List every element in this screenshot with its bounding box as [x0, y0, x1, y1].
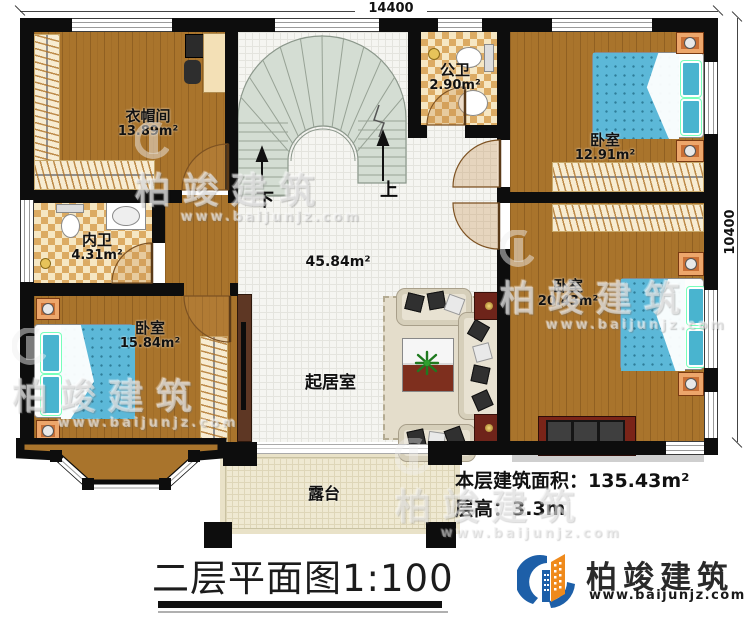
- room-name: 衣帽间: [100, 108, 196, 125]
- room-label-public-bath: 公卫 2.90m²: [415, 62, 495, 94]
- sink-basin: [112, 206, 140, 226]
- window: [666, 441, 704, 455]
- bedroom-bottom-left-closet: [200, 336, 228, 452]
- nightstand: [678, 252, 704, 276]
- toilet-tank: [56, 204, 84, 213]
- wall-segment: [497, 18, 510, 140]
- watermark-url: www.baijunjz.com: [441, 526, 622, 541]
- nightstand: [36, 298, 60, 320]
- window: [438, 18, 482, 32]
- wall-segment: [152, 203, 165, 243]
- bay-window: [16, 438, 231, 502]
- room-name: 卧室: [518, 278, 618, 295]
- wall-segment: [230, 283, 238, 296]
- room-name: 卧室: [555, 132, 655, 149]
- room-area: 45.84m²: [298, 254, 378, 270]
- room-label-terrace: 露台: [308, 480, 340, 504]
- window: [704, 290, 718, 368]
- wall-segment: [20, 283, 184, 296]
- wall-segment: [408, 125, 427, 138]
- wall-segment: [225, 18, 238, 190]
- room-name: 公卫: [415, 62, 495, 79]
- bedroom-right-closet: [552, 204, 704, 232]
- stairs-down-label: 下: [256, 186, 274, 212]
- room-area: 13.89m²: [100, 125, 196, 140]
- floor-area-info: 本层建筑面积：135.43m²: [455, 466, 689, 493]
- wall-segment: [497, 249, 510, 442]
- tv-screen: [241, 322, 246, 410]
- floor-drain: [40, 258, 51, 269]
- room-area: 15.84m²: [102, 337, 198, 352]
- sofa-pillow: [470, 364, 490, 384]
- window: [704, 62, 718, 134]
- sheet-title-scale: 1:100: [342, 557, 454, 600]
- brand-website: www.baijunjz.com: [589, 588, 746, 603]
- nightstand: [676, 32, 704, 54]
- window: [20, 200, 34, 282]
- bedroom-top-right-closet: [552, 162, 704, 192]
- bed: [620, 278, 704, 370]
- floor-height-info: 层高：3.3m: [455, 494, 565, 521]
- terrace-door-threshold: [257, 444, 428, 454]
- wall-segment: [497, 187, 510, 203]
- room-label-living: 起居室: [305, 368, 356, 393]
- floor-area-value: 135.43m²: [588, 470, 689, 492]
- room-area: 2.90m²: [415, 79, 495, 94]
- terrace-pillar: [204, 522, 232, 548]
- cloakroom-wardrobe-bottom: [34, 160, 155, 190]
- window: [275, 18, 379, 32]
- corridor-floor: [165, 195, 238, 296]
- desk-chair: [184, 60, 201, 84]
- room-label-bedroom-bottom-left: 卧室 15.84m²: [102, 320, 198, 352]
- window: [552, 18, 652, 32]
- room-area: 4.31m²: [55, 249, 139, 264]
- window: [704, 392, 718, 438]
- wall-segment: [465, 125, 497, 138]
- wall-pier: [428, 441, 462, 465]
- sheet-title: 二层平面图1:100: [152, 548, 454, 602]
- plant: [414, 350, 440, 376]
- terrace-pillar: [426, 522, 456, 548]
- room-name: 内卫: [55, 232, 139, 249]
- floor-drain: [428, 48, 440, 60]
- room-label-cloakroom: 衣帽间 13.89m²: [100, 108, 196, 140]
- floor-area-label: 本层建筑面积：: [455, 470, 588, 492]
- desk-device: [185, 34, 205, 58]
- wall-shadow: [512, 455, 704, 462]
- floor-height-label: 层高：: [455, 498, 512, 520]
- room-label-bedroom-top-right: 卧室 12.91m²: [555, 132, 655, 164]
- brand-logo-icon: [517, 546, 581, 610]
- window: [72, 18, 172, 32]
- floor-height-value: 3.3m: [512, 498, 565, 520]
- sheet-title-text: 二层平面图: [152, 557, 342, 600]
- living-room-area: 45.84m²: [298, 254, 378, 270]
- title-underline-thin: [158, 611, 448, 613]
- right-dimension-value: 10400: [723, 202, 738, 262]
- wall-segment: [510, 192, 704, 203]
- nightstand: [678, 372, 704, 396]
- room-label-inner-bath: 内卫 4.31m²: [55, 232, 139, 264]
- room-label-bedroom-right: 卧室 20.43m²: [518, 278, 618, 310]
- stairs-up-label: 上: [380, 176, 398, 202]
- room-area: 12.91m²: [555, 149, 655, 164]
- wall-segment: [20, 190, 182, 203]
- room-name: 卧室: [102, 320, 198, 337]
- room-area: 20.43m²: [518, 295, 618, 310]
- floor-plan-sheet: 14400 10400: [0, 0, 750, 621]
- wall-segment: [228, 190, 238, 203]
- bed: [592, 52, 704, 138]
- nightstand: [676, 140, 704, 162]
- curved-staircase: [237, 31, 408, 197]
- top-dimension-value: 14400: [355, 1, 427, 16]
- title-underline: [158, 601, 442, 608]
